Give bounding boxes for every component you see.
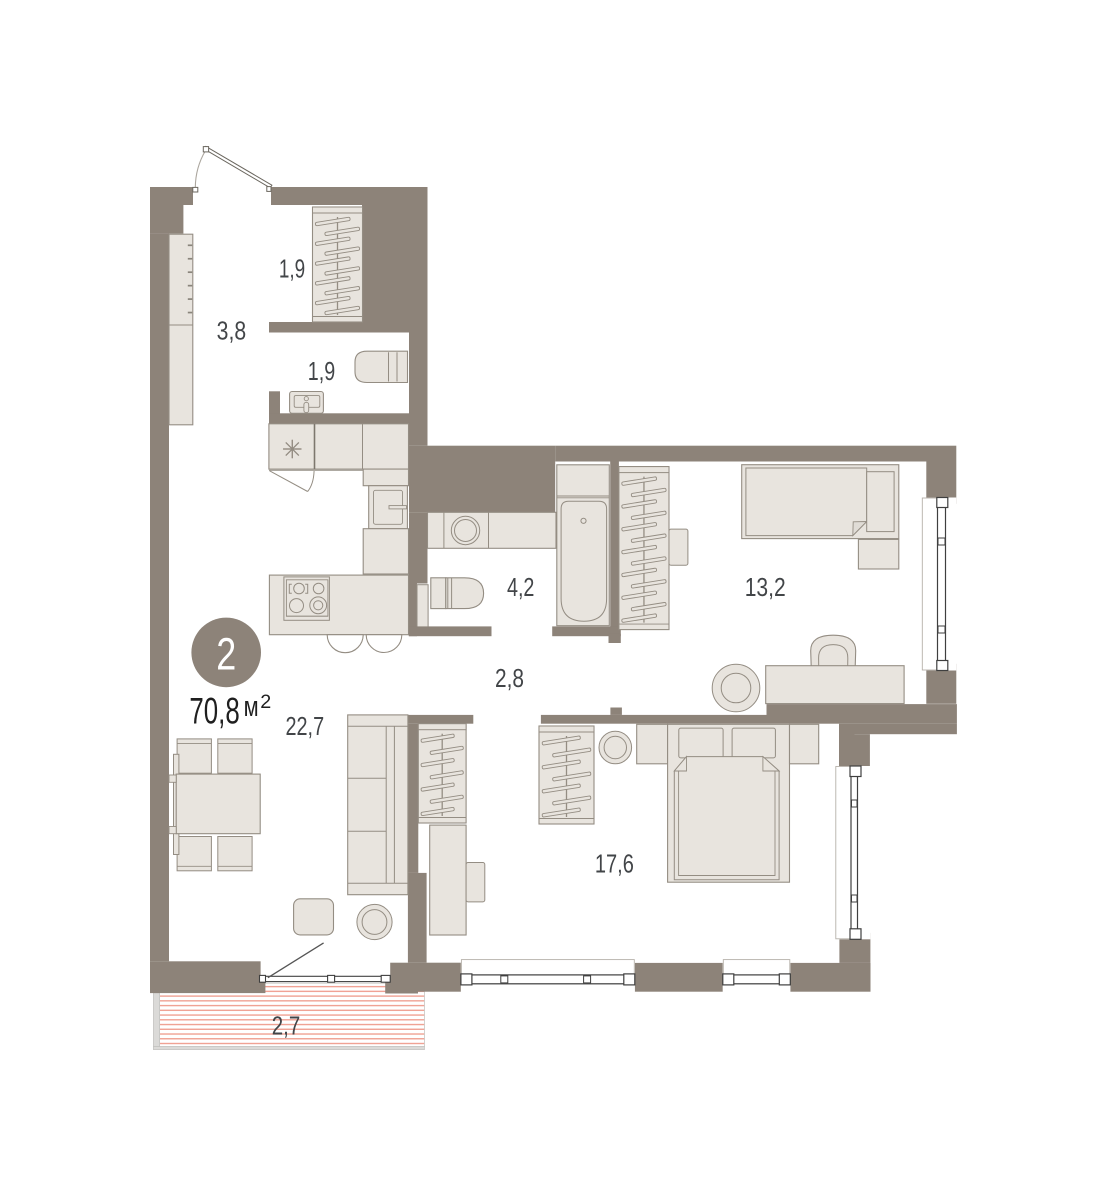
svg-text:м: м	[244, 691, 259, 723]
svg-text:2,7: 2,7	[272, 1011, 301, 1041]
svg-text:13,2: 13,2	[745, 572, 786, 602]
svg-text:1,9: 1,9	[308, 356, 335, 386]
svg-text:3,8: 3,8	[217, 315, 247, 345]
svg-text:2: 2	[216, 629, 236, 680]
svg-text:4,2: 4,2	[507, 572, 535, 602]
svg-text:70,8: 70,8	[189, 690, 239, 731]
svg-text:2,8: 2,8	[495, 663, 524, 693]
svg-text:2: 2	[260, 692, 271, 713]
svg-text:1,9: 1,9	[279, 254, 305, 284]
svg-text:17,6: 17,6	[595, 849, 634, 879]
svg-text:22,7: 22,7	[286, 711, 325, 741]
